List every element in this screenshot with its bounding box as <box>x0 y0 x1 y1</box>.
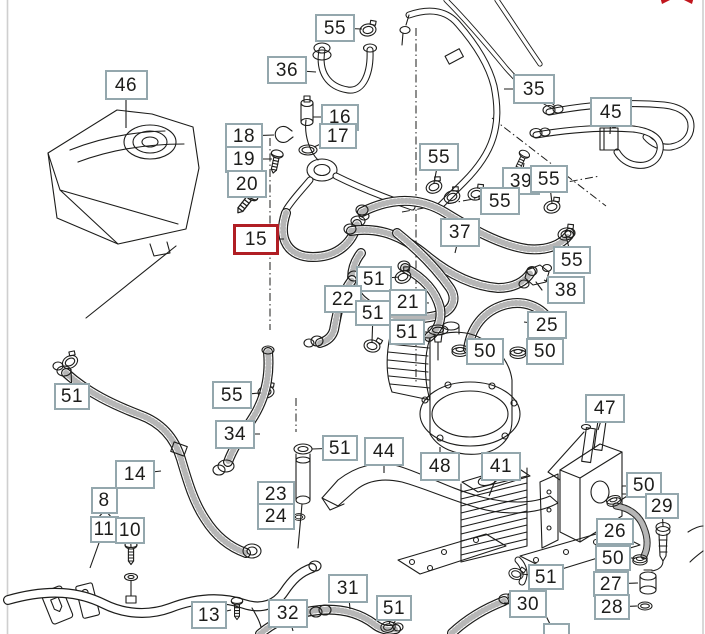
callout-8[interactable]: 8 <box>91 487 118 514</box>
callout-44[interactable]: 44 <box>364 437 404 466</box>
callout-50[interactable]: 50 <box>595 545 631 571</box>
callout-55[interactable]: 55 <box>480 187 520 215</box>
resize-arrows-icon[interactable] <box>655 0 699 18</box>
callout-51[interactable]: 51 <box>528 564 564 590</box>
callout-partial[interactable] <box>543 623 570 634</box>
callout-21[interactable]: 21 <box>389 289 427 316</box>
callout-50[interactable]: 50 <box>526 338 564 365</box>
callout-17[interactable]: 17 <box>319 123 357 149</box>
callout-13[interactable]: 13 <box>191 601 227 629</box>
callout-55[interactable]: 55 <box>212 381 252 409</box>
parts-diagram-canvas: 4655361617181920153545553955553755385122… <box>0 0 705 634</box>
callout-48[interactable]: 48 <box>420 452 460 481</box>
callout-51[interactable]: 51 <box>322 435 358 461</box>
callout-10[interactable]: 10 <box>115 517 145 544</box>
callout-29[interactable]: 29 <box>645 493 679 519</box>
callout-25[interactable]: 25 <box>527 311 567 339</box>
callout-45[interactable]: 45 <box>590 97 632 127</box>
callout-55[interactable]: 55 <box>419 143 459 171</box>
callout-50[interactable]: 50 <box>466 338 504 365</box>
callout-15[interactable]: 15 <box>233 224 279 255</box>
callout-51[interactable]: 51 <box>355 300 391 326</box>
callout-55[interactable]: 55 <box>530 165 568 193</box>
callout-32[interactable]: 32 <box>268 599 308 628</box>
callout-51[interactable]: 51 <box>389 319 425 345</box>
callout-37[interactable]: 37 <box>440 218 480 247</box>
callout-28[interactable]: 28 <box>594 594 630 620</box>
callout-14[interactable]: 14 <box>115 460 155 489</box>
callout-46[interactable]: 46 <box>105 70 148 100</box>
callout-36[interactable]: 36 <box>267 56 307 84</box>
callout-41[interactable]: 41 <box>481 452 521 481</box>
callout-20[interactable]: 20 <box>227 170 267 198</box>
callout-35[interactable]: 35 <box>513 74 555 104</box>
callout-47[interactable]: 47 <box>585 394 625 423</box>
callout-51[interactable]: 51 <box>54 383 90 410</box>
callout-30[interactable]: 30 <box>509 590 547 618</box>
callout-51[interactable]: 51 <box>376 595 412 621</box>
callout-24[interactable]: 24 <box>257 503 295 530</box>
callout-55[interactable]: 55 <box>553 246 591 274</box>
callout-19[interactable]: 19 <box>225 146 263 173</box>
callout-26[interactable]: 26 <box>596 518 634 545</box>
callout-34[interactable]: 34 <box>215 420 255 449</box>
callout-38[interactable]: 38 <box>547 276 585 304</box>
callout-31[interactable]: 31 <box>328 574 368 603</box>
callout-55[interactable]: 55 <box>315 14 355 42</box>
